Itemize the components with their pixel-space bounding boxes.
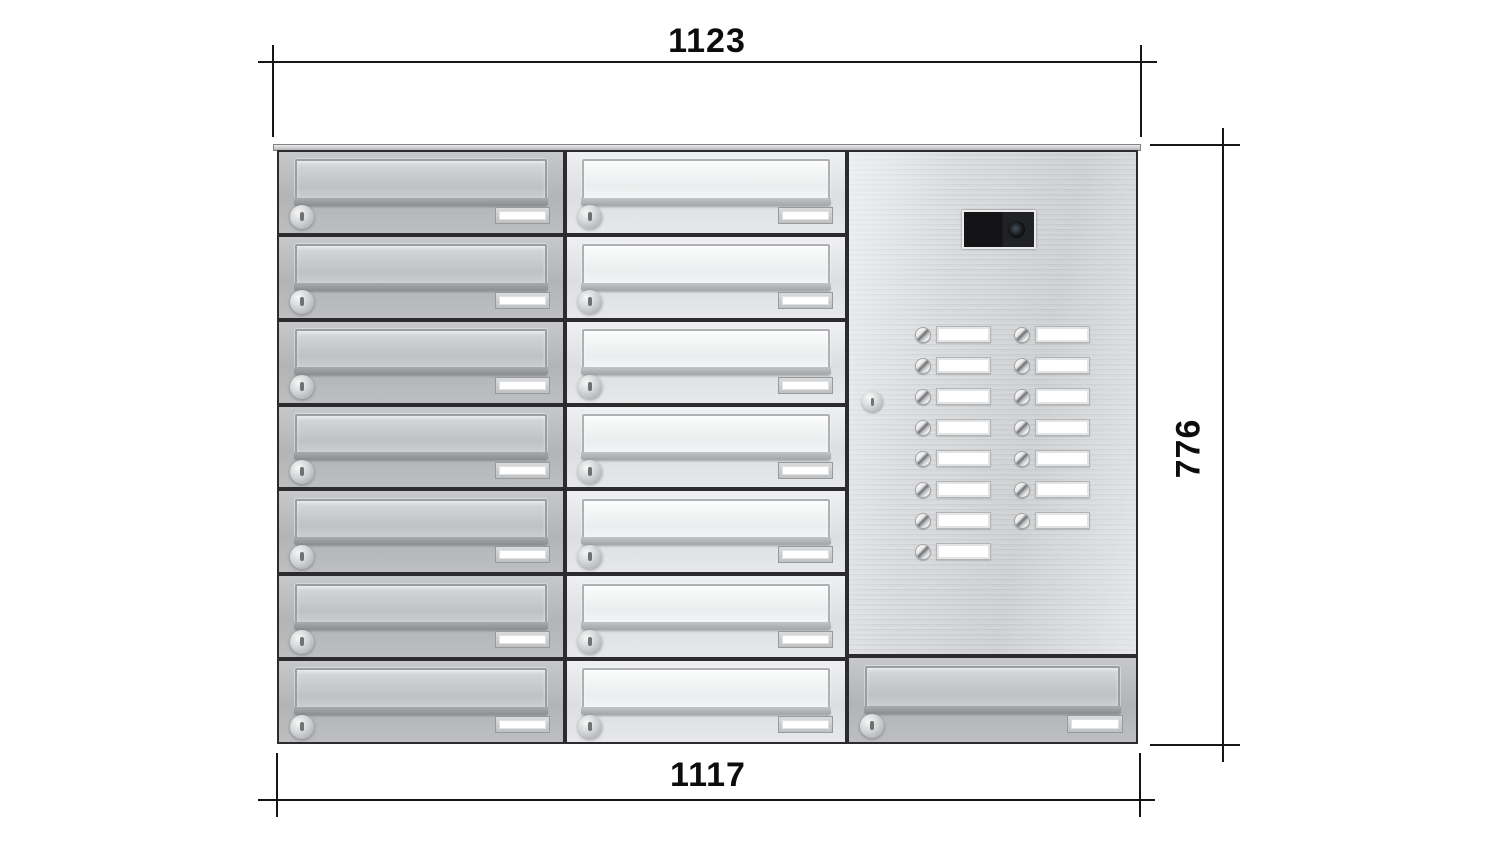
bell-button[interactable] <box>915 389 931 405</box>
name-plate <box>495 631 550 648</box>
name-plate <box>495 716 550 733</box>
lock-cylinder <box>578 715 602 739</box>
name-plate <box>778 377 832 394</box>
name-plate <box>778 716 832 733</box>
name-plate-label <box>499 720 546 729</box>
mailbox <box>277 235 565 320</box>
name-plate-label <box>782 466 828 475</box>
lock-cylinder <box>290 630 314 654</box>
dimension-label-top: 1123 <box>607 22 807 61</box>
letter-flap <box>295 499 548 539</box>
name-plate-label <box>782 550 828 559</box>
bell-button[interactable] <box>915 544 931 560</box>
lock-cylinder <box>860 714 884 738</box>
bell-name-plate <box>936 388 991 405</box>
bell-button[interactable] <box>915 451 931 467</box>
lock-cylinder <box>578 375 602 399</box>
panel-lock-cylinder <box>862 391 883 412</box>
mailbox <box>277 150 565 235</box>
bell-name-plate <box>1035 512 1090 529</box>
dimension-tick-bottom-left <box>276 753 278 817</box>
name-plate <box>778 207 832 224</box>
bell-button[interactable] <box>1014 513 1030 529</box>
letter-flap <box>295 668 548 708</box>
name-plate-label <box>499 381 546 390</box>
mailbox <box>565 405 847 490</box>
bell-button[interactable] <box>1014 389 1030 405</box>
drawing-canvas: 1123 776 1117 <box>0 0 1500 856</box>
name-plate-label <box>499 211 546 220</box>
bell-name-plate <box>936 481 991 498</box>
lock-cylinder <box>578 630 602 654</box>
dimension-tick-top-right <box>1140 45 1142 137</box>
bell-button[interactable] <box>915 420 931 436</box>
dimension-tick-top-left <box>272 45 274 137</box>
bell-name-plate <box>936 326 991 343</box>
mailbox-column-middle <box>565 150 847 744</box>
letter-flap <box>582 414 829 454</box>
mailbox <box>277 659 565 744</box>
letter-flap <box>295 414 548 454</box>
lock-cylinder <box>578 290 602 314</box>
name-plate-label <box>499 635 546 644</box>
bell-name-plate <box>1035 481 1090 498</box>
bell-button[interactable] <box>1014 482 1030 498</box>
lock-cylinder <box>290 460 314 484</box>
bell-button[interactable] <box>1014 420 1030 436</box>
camera-lens-icon <box>1008 221 1025 238</box>
mailbox <box>565 235 847 320</box>
mailbox <box>277 574 565 659</box>
dimension-tick-right-top <box>1150 144 1240 146</box>
letter-flap <box>295 159 548 199</box>
name-plate-label <box>782 720 828 729</box>
name-plate <box>778 546 832 563</box>
dimension-tick-bottom-right <box>1139 753 1141 817</box>
mailbox <box>277 320 565 405</box>
dimension-line-right <box>1222 128 1224 762</box>
mailbox <box>565 574 847 659</box>
name-plate-label <box>782 296 828 305</box>
name-plate <box>495 377 550 394</box>
letter-flap <box>295 244 548 284</box>
mailbox <box>565 489 847 574</box>
name-plate <box>778 292 832 309</box>
mailbox <box>565 150 847 235</box>
mailbox <box>565 659 847 744</box>
letter-flap <box>582 584 829 624</box>
bell-name-plate <box>1035 419 1090 436</box>
lock-cylinder <box>290 290 314 314</box>
name-plate <box>495 292 550 309</box>
mailbox <box>847 656 1138 744</box>
bell-button[interactable] <box>915 327 931 343</box>
letter-flap <box>582 668 829 708</box>
bell-name-plate <box>1035 450 1090 467</box>
letter-flap <box>582 329 829 369</box>
letter-flap <box>865 666 1120 708</box>
dimension-line-top <box>258 61 1157 63</box>
name-plate-label <box>782 635 828 644</box>
bell-button[interactable] <box>1014 451 1030 467</box>
bell-name-plate <box>936 357 991 374</box>
lock-cylinder <box>578 460 602 484</box>
dimension-tick-right-bottom <box>1150 744 1240 746</box>
name-plate <box>495 546 550 563</box>
letter-flap <box>295 584 548 624</box>
lock-cylinder <box>290 375 314 399</box>
lock-cylinder <box>290 205 314 229</box>
letter-flap <box>582 159 829 199</box>
mailbox <box>277 489 565 574</box>
mailbox-column-left <box>277 150 565 744</box>
name-plate-label <box>782 211 828 220</box>
name-plate-label <box>1071 719 1119 729</box>
bell-button[interactable] <box>1014 327 1030 343</box>
bell-name-plate <box>1035 357 1090 374</box>
letter-flap <box>582 499 829 539</box>
bell-name-plate <box>1035 326 1090 343</box>
letter-flap <box>295 329 548 369</box>
mailbox <box>565 320 847 405</box>
intercom-column <box>847 150 1138 744</box>
camera-module <box>962 210 1036 249</box>
bell-name-plate <box>936 512 991 529</box>
name-plate <box>1067 715 1123 733</box>
lock-cylinder <box>578 205 602 229</box>
bell-button[interactable] <box>915 513 931 529</box>
bell-button[interactable] <box>915 482 931 498</box>
name-plate-label <box>499 550 546 559</box>
letter-flap <box>582 244 829 284</box>
bell-name-plate <box>936 543 991 560</box>
name-plate <box>495 207 550 224</box>
bell-name-plate <box>936 450 991 467</box>
mailbox <box>277 405 565 490</box>
name-plate-label <box>782 381 828 390</box>
lock-cylinder <box>290 545 314 569</box>
dimension-label-right: 776 <box>1160 348 1218 548</box>
name-plate-label <box>499 296 546 305</box>
intercom-panel <box>847 150 1138 656</box>
bell-button[interactable] <box>915 358 931 374</box>
name-plate <box>778 462 832 479</box>
name-plate <box>778 631 832 648</box>
name-plate-label <box>499 466 546 475</box>
lock-cylinder <box>578 545 602 569</box>
dimension-line-bottom <box>258 799 1155 801</box>
bell-button[interactable] <box>1014 358 1030 374</box>
bell-name-plate <box>936 419 991 436</box>
name-plate <box>495 462 550 479</box>
bell-name-plate <box>1035 388 1090 405</box>
lock-cylinder <box>290 715 314 739</box>
dimension-label-bottom: 1117 <box>608 756 808 795</box>
